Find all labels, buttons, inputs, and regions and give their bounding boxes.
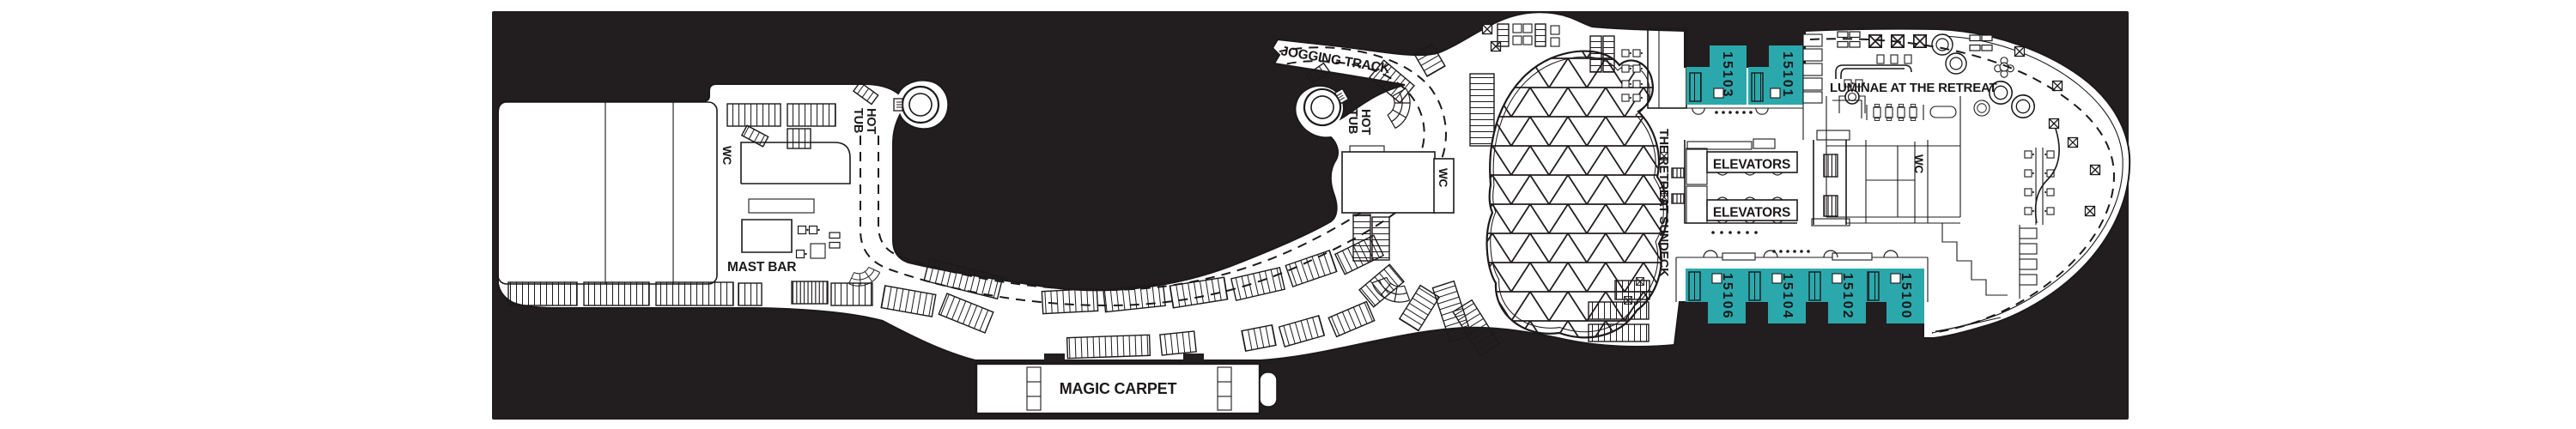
deck-plan-canvas: WC MAST BAR HOTTUB JOGGING TRACK MAGIC	[0, 0, 2576, 429]
svg-text:15103: 15103	[1720, 51, 1735, 99]
elevators-label-1: ELEVATORS	[1713, 158, 1790, 172]
svg-text:15102: 15102	[1840, 273, 1855, 320]
hot-tub-midship-label: HOTTUB	[1346, 109, 1372, 135]
svg-text:15101: 15101	[1780, 51, 1795, 99]
retreat-sundeck-label: THE RETREAT SUNDECK	[1656, 129, 1670, 277]
mast-bar-label: MAST BAR	[727, 260, 796, 275]
wc-aft-label: WC	[720, 146, 733, 166]
deck-plan-page: WC MAST BAR HOTTUB JOGGING TRACK MAGIC	[0, 0, 2576, 429]
luminae-label: LUMINAE AT THE RETREAT	[1830, 81, 1997, 95]
wc-midship-label: WC	[1437, 168, 1449, 188]
wc-forward-label: WC	[1912, 154, 1925, 174]
balcony-dividers	[1803, 32, 1822, 105]
svg-text:15106: 15106	[1720, 273, 1735, 320]
hot-tub-aft-label: HOTTUB	[851, 108, 878, 134]
svg-text:15100: 15100	[1899, 273, 1913, 320]
elevators-label-2: ELEVATORS	[1713, 206, 1790, 221]
svg-text:15104: 15104	[1780, 273, 1795, 320]
magic-carpet-label: MAGIC CARPET	[1060, 380, 1177, 397]
